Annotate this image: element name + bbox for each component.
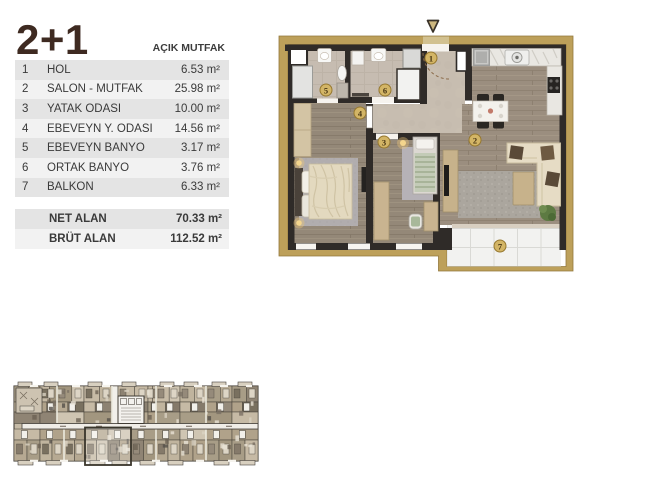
- svg-text:1: 1: [429, 54, 433, 64]
- svg-text:6: 6: [383, 86, 387, 96]
- svg-text:5: 5: [324, 86, 328, 96]
- svg-text:3: 3: [382, 138, 386, 148]
- svg-text:2: 2: [473, 136, 477, 146]
